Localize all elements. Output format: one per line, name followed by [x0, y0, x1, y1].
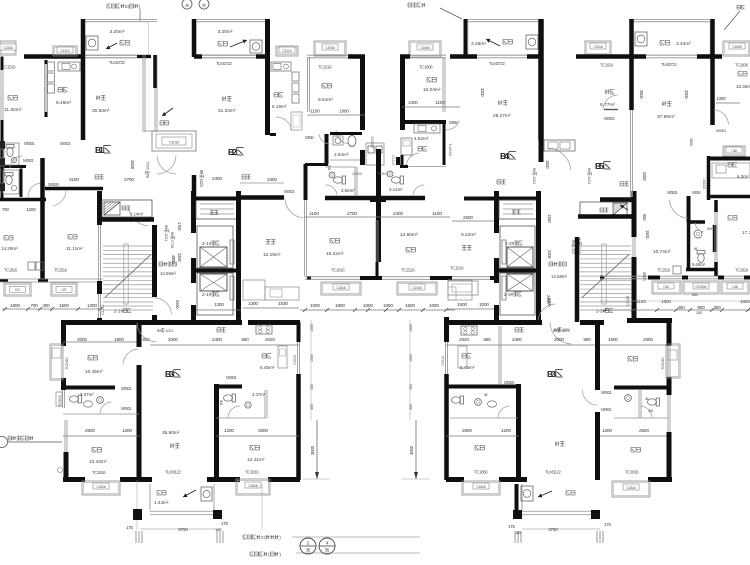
- svg-text:450: 450: [409, 384, 413, 390]
- svg-text:B2: B2: [228, 147, 237, 157]
- svg-text:TC1806: TC1806: [419, 65, 433, 70]
- svg-text:M0921: M0921: [667, 190, 679, 195]
- svg-text:TC1516: TC1516: [64, 357, 69, 370]
- svg-text:C1816: C1816: [248, 484, 257, 488]
- svg-text:C1816: C1816: [626, 486, 635, 490]
- svg-text:14.56m²: 14.56m²: [160, 271, 177, 276]
- svg-text:2400: 2400: [393, 211, 403, 217]
- svg-text:M0920: M0920: [48, 182, 60, 187]
- svg-text:580: 580: [483, 337, 491, 343]
- svg-text:175: 175: [126, 525, 133, 530]
- svg-text:2400: 2400: [175, 300, 180, 309]
- svg-text:C1213: C1213: [100, 304, 105, 315]
- svg-text:TC1836: TC1836: [735, 63, 749, 68]
- svg-text:B5: B5: [595, 161, 604, 171]
- svg-text:35.60m²: 35.60m²: [162, 430, 180, 436]
- svg-text:C1516: C1516: [325, 46, 334, 50]
- svg-text:FM: FM: [199, 170, 204, 175]
- svg-text:C1816: C1816: [96, 485, 105, 489]
- svg-text:650: 650: [692, 293, 698, 297]
- svg-text:3000: 3000: [409, 445, 414, 455]
- svg-text:TLM3122: TLM3122: [545, 470, 562, 475]
- svg-text:FM: FM: [170, 232, 175, 236]
- svg-text:2-2#: 2-2#: [504, 292, 514, 297]
- svg-text:2-2#: 2-2#: [505, 241, 515, 246]
- svg-text:1800: 1800: [10, 303, 20, 309]
- svg-text:GC0910: GC0910: [58, 395, 62, 407]
- svg-text:1100: 1100: [310, 109, 320, 114]
- svg-text:C1516: C1516: [3, 46, 12, 50]
- svg-text:35: 35: [325, 548, 330, 553]
- svg-text:M0921: M0921: [24, 141, 36, 146]
- svg-text:1900: 1900: [339, 109, 349, 114]
- svg-text:C1113: C1113: [282, 49, 291, 53]
- svg-text:900: 900: [642, 214, 647, 221]
- svg-text:15.22m²: 15.22m²: [326, 251, 344, 257]
- svg-text:C1816: C1816: [476, 485, 485, 489]
- svg-text:C1816: C1816: [336, 286, 345, 290]
- svg-text:1500: 1500: [608, 337, 618, 343]
- svg-text:M0921: M0921: [121, 406, 133, 411]
- svg-text:185: 185: [215, 527, 222, 532]
- svg-text:2020: 2020: [265, 337, 275, 343]
- svg-text:3.37m²: 3.37m²: [80, 392, 94, 397]
- svg-text:37.95m²: 37.95m²: [657, 114, 675, 120]
- svg-text:2: 2: [307, 541, 310, 546]
- svg-text:1200: 1200: [26, 207, 36, 212]
- svg-text:TC1516: TC1516: [2, 65, 16, 70]
- svg-text:WC: WC: [645, 397, 649, 401]
- svg-text:C1836: C1836: [732, 45, 741, 49]
- svg-text:29.27m²: 29.27m²: [493, 113, 511, 119]
- svg-text:TLM2722: TLM2722: [109, 60, 126, 65]
- svg-text:5(: 5(: [125, 4, 130, 9]
- svg-text:C2?: C2?: [61, 288, 67, 292]
- svg-text:TLM2722: TLM2722: [661, 62, 678, 67]
- svg-text:GC0910: GC0910: [695, 285, 706, 289]
- svg-text:M0921: M0921: [604, 116, 616, 121]
- svg-text:2-1#: 2-1#: [202, 292, 212, 297]
- svg-text:2(: 2(: [261, 535, 266, 540]
- svg-text:6.49m²: 6.49m²: [56, 100, 71, 106]
- svg-text:1100: 1100: [309, 211, 319, 217]
- svg-text:2700: 2700: [347, 211, 357, 217]
- svg-text:2.64m²: 2.64m²: [334, 152, 349, 157]
- svg-text:2600: 2600: [463, 215, 473, 221]
- svg-text:2400: 2400: [512, 337, 522, 343]
- svg-text:30.83m²: 30.83m²: [92, 108, 110, 114]
- svg-text:M0921: M0921: [504, 380, 516, 385]
- svg-text:C15: C15: [663, 285, 669, 289]
- svg-text:1500: 1500: [661, 299, 671, 305]
- svg-text:400: 400: [713, 305, 721, 311]
- svg-text:2600: 2600: [258, 428, 268, 434]
- svg-text:1500: 1500: [409, 354, 413, 362]
- svg-text:450: 450: [310, 384, 314, 390]
- svg-text:36: 36: [202, 4, 206, 8]
- svg-text:M0921: M0921: [121, 386, 133, 391]
- svg-text:175: 175: [221, 521, 228, 526]
- svg-text:1800: 1800: [740, 299, 750, 305]
- svg-text:3000: 3000: [310, 445, 315, 455]
- svg-text:4900: 4900: [642, 272, 647, 281]
- svg-text:3400: 3400: [267, 177, 277, 183]
- svg-text:1000: 1000: [479, 302, 489, 308]
- svg-text:3100: 3100: [69, 177, 79, 183]
- svg-text:C1513: C1513: [441, 356, 445, 366]
- svg-text:C0913: C0913: [378, 172, 388, 176]
- svg-text:3.28m²: 3.28m²: [471, 41, 486, 47]
- svg-text:14.58m²: 14.58m²: [551, 274, 568, 279]
- svg-text:300: 300: [42, 303, 50, 309]
- svg-text:3.20m²: 3.20m²: [110, 29, 125, 35]
- svg-text:1021: 1021: [587, 176, 592, 185]
- svg-text:M0921: M0921: [601, 407, 613, 412]
- svg-text:TC1816: TC1816: [735, 268, 749, 273]
- svg-text:175: 175: [508, 524, 515, 529]
- svg-text:1700: 1700: [177, 222, 182, 231]
- svg-text:5750: 5750: [178, 527, 188, 532]
- svg-text:1000: 1000: [383, 303, 393, 309]
- svg-text:900: 900: [142, 337, 150, 343]
- svg-text:TC1856: TC1856: [474, 470, 488, 475]
- svg-text:1021: 1021: [165, 328, 174, 333]
- svg-text:1800: 1800: [114, 337, 124, 343]
- svg-text:1300: 1300: [716, 96, 726, 101]
- svg-text:FM: FM: [145, 174, 150, 178]
- svg-text:1200: 1200: [224, 428, 234, 434]
- svg-text:TLM3122: TLM3122: [165, 470, 182, 475]
- svg-text:2400: 2400: [408, 100, 418, 105]
- svg-text:B1: B1: [95, 145, 104, 155]
- svg-text:TC1816: TC1816: [4, 268, 18, 273]
- svg-text:2000: 2000: [643, 337, 653, 343]
- svg-text:C0913: C0913: [352, 172, 362, 176]
- svg-text:FM: FM: [587, 168, 592, 172]
- svg-text:B3: B3: [165, 369, 174, 379]
- svg-text:M092: M092: [449, 120, 458, 125]
- svg-text:4.52m²: 4.52m²: [414, 136, 429, 141]
- svg-text:3.56m²: 3.56m²: [341, 188, 355, 193]
- svg-text:5M1: 5M1: [327, 165, 331, 171]
- svg-text:9.22m²: 9.22m²: [461, 232, 476, 238]
- svg-text:175: 175: [604, 522, 611, 527]
- svg-text:1500: 1500: [645, 230, 650, 239]
- svg-text:M0921: M0921: [601, 390, 613, 395]
- svg-text:31.34m²: 31.34m²: [218, 108, 236, 114]
- svg-text:C1019: C1019: [169, 141, 179, 145]
- svg-text:C1516: C1516: [593, 45, 602, 49]
- svg-text:3.37m²: 3.37m²: [252, 392, 266, 397]
- svg-text:2500: 2500: [130, 160, 135, 170]
- svg-text:C1806: C1806: [420, 46, 429, 50]
- svg-text:0718: 0718: [170, 240, 175, 249]
- svg-text:C18: C18: [731, 149, 737, 153]
- svg-text:TC1516: TC1516: [600, 63, 614, 68]
- svg-text:0.14m²: 0.14m²: [130, 212, 144, 217]
- svg-text:TC1516: TC1516: [450, 266, 464, 271]
- svg-text:1500: 1500: [405, 303, 415, 309]
- svg-text:300: 300: [310, 404, 314, 410]
- svg-text:M0921: M0921: [284, 189, 296, 194]
- svg-text:35: 35: [306, 548, 311, 553]
- svg-text:1021: 1021: [145, 161, 150, 170]
- svg-text:1200: 1200: [122, 428, 132, 434]
- svg-text:2000: 2000: [77, 337, 87, 343]
- svg-text:17.3: 17.3: [742, 230, 750, 235]
- svg-text:150: 150: [696, 311, 702, 315]
- svg-text:8.77m²: 8.77m²: [600, 102, 615, 108]
- svg-text:12.19m²: 12.19m²: [263, 252, 281, 258]
- svg-text:4800: 4800: [171, 255, 176, 264]
- svg-text:1800: 1800: [335, 303, 345, 309]
- svg-text:10.04m²: 10.04m²: [423, 87, 441, 93]
- svg-text:TC1516: TC1516: [657, 268, 671, 273]
- svg-text:TLM1521: TLM1521: [448, 143, 452, 157]
- svg-text:2600: 2600: [85, 428, 95, 434]
- svg-text:400: 400: [677, 305, 685, 311]
- svg-text:C1213: C1213: [625, 295, 630, 306]
- svg-text:GC0910: GC0910: [370, 136, 374, 148]
- svg-text:2500: 2500: [639, 428, 649, 434]
- svg-text:1200: 1200: [602, 428, 612, 434]
- svg-text:3.14m²: 3.14m²: [389, 187, 403, 192]
- svg-text:700: 700: [2, 207, 9, 212]
- svg-text:10.36m²: 10.36m²: [736, 84, 750, 89]
- svg-text:3200: 3200: [480, 88, 485, 97]
- svg-text:1.44m²: 1.44m²: [154, 500, 169, 505]
- svg-text:1100: 1100: [435, 100, 445, 105]
- svg-text:1021: 1021: [199, 179, 204, 188]
- svg-text:1500: 1500: [689, 138, 694, 147]
- svg-text:6.19m²: 6.19m²: [272, 104, 287, 109]
- svg-text:M0921: M0921: [60, 141, 72, 146]
- svg-text:B4: B4: [500, 151, 509, 161]
- svg-text:TC1816: TC1816: [245, 470, 259, 475]
- svg-text:C1113: C1113: [60, 49, 69, 53]
- svg-text:TC1816: TC1816: [625, 470, 639, 475]
- svg-text:4: 4: [326, 541, 329, 546]
- svg-text:1500: 1500: [457, 302, 467, 308]
- svg-text:2400: 2400: [212, 337, 222, 343]
- svg-text:2400: 2400: [546, 295, 551, 304]
- svg-text:580: 580: [241, 337, 249, 343]
- svg-text:3750: 3750: [548, 527, 558, 532]
- svg-text:2700: 2700: [124, 177, 134, 183]
- svg-text:1000: 1000: [409, 324, 413, 332]
- svg-text:2-1#: 2-1#: [114, 309, 124, 314]
- svg-text:5.45m²: 5.45m²: [260, 365, 275, 370]
- svg-text:1200: 1200: [501, 428, 511, 434]
- svg-text:M092: M092: [692, 190, 701, 195]
- svg-text:1021: 1021: [561, 328, 570, 333]
- svg-text:1500: 1500: [310, 354, 314, 362]
- svg-text:C18: C18: [732, 285, 738, 289]
- svg-text:1300: 1300: [214, 302, 224, 307]
- svg-text:10.74m²: 10.74m²: [653, 249, 671, 255]
- svg-text:1830: 1830: [278, 301, 288, 307]
- svg-text:2000: 2000: [554, 337, 564, 343]
- svg-text:1600: 1600: [545, 160, 550, 169]
- svg-text:M0921: M0921: [23, 158, 35, 163]
- svg-text:11.11m²: 11.11m²: [66, 246, 83, 251]
- svg-text:1100: 1100: [432, 211, 442, 217]
- svg-text:700: 700: [30, 303, 38, 309]
- svg-text:LM1521: LM1521: [702, 178, 706, 190]
- svg-text:1000: 1000: [429, 303, 439, 309]
- svg-text:1000: 1000: [310, 324, 314, 332]
- svg-text:2020: 2020: [459, 337, 469, 343]
- svg-text:2200: 2200: [547, 250, 552, 259]
- svg-text:C1?: C1?: [15, 288, 21, 292]
- svg-text:6.3m²: 6.3m²: [737, 174, 749, 179]
- svg-text:1000: 1000: [363, 303, 373, 309]
- svg-text:2400: 2400: [212, 176, 222, 182]
- svg-text:FM: FM: [164, 225, 169, 229]
- svg-text:3.44m²: 3.44m²: [676, 41, 691, 47]
- svg-text:3200: 3200: [642, 172, 647, 181]
- svg-text:M092: M092: [305, 135, 314, 140]
- svg-text:1021: 1021: [164, 233, 169, 242]
- svg-text:1500: 1500: [59, 303, 69, 309]
- svg-text:10.43m²: 10.43m²: [89, 459, 107, 465]
- svg-text:14.29m²: 14.29m²: [1, 246, 18, 251]
- svg-text:FM: FM: [532, 168, 537, 172]
- svg-text:TLM2722: TLM2722: [216, 61, 233, 66]
- svg-text:2000: 2000: [168, 337, 178, 343]
- svg-text:5.45m²: 5.45m²: [460, 365, 475, 370]
- svg-text:TC1516: TC1516: [660, 357, 665, 370]
- svg-text:5M1: 5M1: [648, 409, 654, 413]
- svg-text:TC1816: TC1816: [92, 470, 106, 475]
- svg-text:TC1516: TC1516: [401, 268, 415, 273]
- svg-text:5.65m²: 5.65m²: [692, 262, 706, 267]
- svg-text:B3: B3: [547, 369, 556, 379]
- svg-text:1021: 1021: [532, 176, 537, 185]
- svg-text:C1113: C1113: [391, 155, 395, 165]
- svg-text:300: 300: [409, 404, 413, 410]
- svg-text:3500: 3500: [639, 90, 644, 99]
- svg-text:TC1516: TC1516: [54, 268, 68, 273]
- svg-text:1200: 1200: [547, 214, 552, 223]
- svg-text:10.45m²: 10.45m²: [85, 369, 103, 375]
- svg-text:WC: WC: [694, 247, 698, 251]
- svg-text:5M1: 5M1: [219, 400, 223, 406]
- svg-text:1100: 1100: [636, 299, 646, 305]
- svg-text:TC1816: TC1816: [331, 268, 345, 273]
- svg-text:2600: 2600: [462, 428, 472, 434]
- svg-text:3200: 3200: [684, 90, 689, 99]
- svg-text:1300: 1300: [248, 301, 258, 307]
- svg-text:11.82m²: 11.82m²: [4, 107, 22, 113]
- svg-text:M0921: M0921: [716, 128, 727, 133]
- svg-text:WC: WC: [484, 393, 488, 397]
- svg-text:1000: 1000: [310, 303, 320, 309]
- svg-text:1300: 1300: [87, 303, 97, 309]
- svg-text:C1516: C1516: [412, 286, 421, 290]
- svg-text:2-1#: 2-1#: [202, 241, 212, 246]
- svg-text:3.20m²: 3.20m²: [218, 29, 233, 35]
- svg-text:TLM2722: TLM2722: [489, 61, 506, 66]
- svg-text:FM: FM: [553, 328, 557, 333]
- svg-text:12.60m²: 12.60m²: [400, 232, 418, 238]
- svg-text:900: 900: [583, 337, 591, 343]
- svg-text:FM: FM: [157, 328, 161, 333]
- svg-text:12.11m²: 12.11m²: [247, 457, 265, 463]
- svg-text:36: 36: [185, 4, 189, 8]
- svg-text:M0921: M0921: [226, 375, 238, 380]
- svg-text:5M1: 5M1: [707, 227, 713, 231]
- svg-text:9.54m²: 9.54m²: [318, 97, 333, 103]
- svg-text:2200: 2200: [177, 253, 182, 262]
- svg-text:TC1516: TC1516: [318, 65, 332, 70]
- svg-text:C1543: C1543: [293, 355, 297, 365]
